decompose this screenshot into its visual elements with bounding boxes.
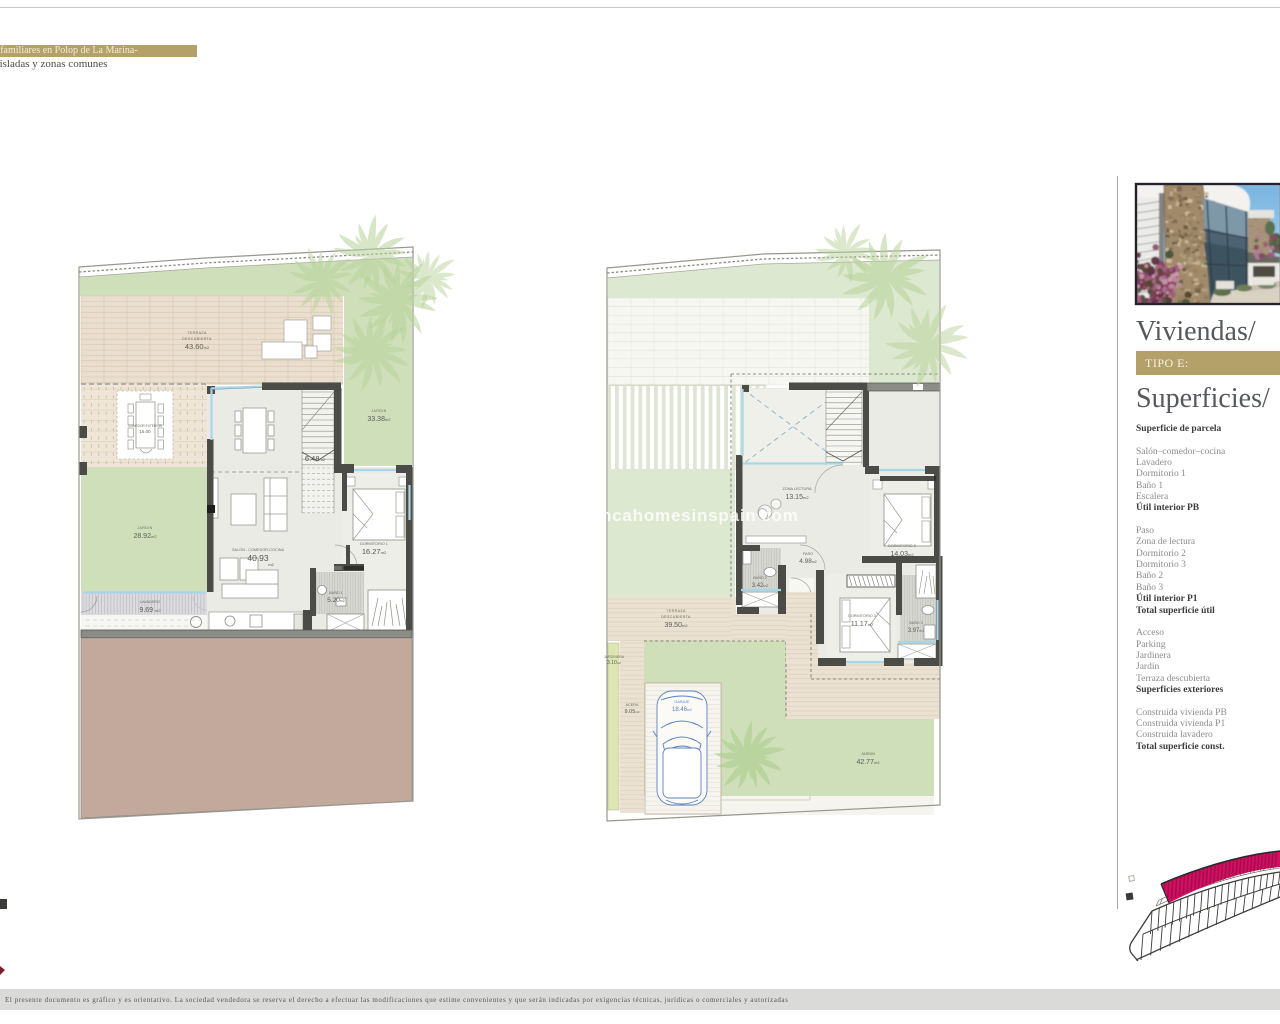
svg-text:GARAJE: GARAJE	[674, 700, 690, 704]
svg-text:TERRAZA: TERRAZA	[666, 609, 686, 613]
svg-text:40.93: 40.93	[247, 553, 269, 563]
svg-text:13.15m2: 13.15m2	[785, 494, 809, 501]
svg-text:DORMITORIO 3: DORMITORIO 3	[848, 614, 876, 618]
svg-text:4.98m2: 4.98m2	[799, 558, 817, 565]
svg-text:14.03m2: 14.03m2	[890, 551, 914, 558]
svg-text:39.50m2: 39.50m2	[664, 622, 688, 629]
svg-text:11.17m2: 11.17m2	[851, 621, 874, 628]
svg-text:DESCUBIERTA: DESCUBIERTA	[182, 337, 212, 341]
svg-text:DORMITORIO 2: DORMITORIO 2	[888, 544, 916, 548]
svg-text:DESCUBIERTA: DESCUBIERTA	[661, 615, 691, 619]
svg-text:BAÑO 3: BAÑO 3	[909, 620, 922, 625]
svg-text:BAÑO 1: BAÑO 1	[329, 590, 342, 595]
svg-text:JARDIN: JARDIN	[861, 752, 875, 756]
svg-text:BAÑO 2: BAÑO 2	[753, 575, 766, 580]
svg-text:COMEDOR EXTERIOR: COMEDOR EXTERIOR	[128, 424, 163, 428]
svg-text:9.69 m2: 9.69 m2	[139, 607, 161, 614]
svg-text:ZONA LECTURA: ZONA LECTURA	[782, 487, 812, 491]
svg-text:5.20m2: 5.20m2	[327, 597, 345, 604]
svg-text:JARDIN: JARDIN	[137, 526, 152, 530]
svg-text:TERRAZA: TERRAZA	[187, 331, 207, 335]
svg-text:JARDIN: JARDIN	[371, 409, 386, 413]
svg-text:33.38m2: 33.38m2	[367, 416, 391, 423]
svg-text:42.77m2: 42.77m2	[856, 759, 880, 766]
svg-text:m2: m2	[268, 562, 274, 567]
svg-text:DORMITORIO 1: DORMITORIO 1	[360, 542, 388, 546]
svg-text:SALON - COMEDOR-COCINA: SALON - COMEDOR-COCINA	[232, 548, 285, 552]
svg-text:28.92m2: 28.92m2	[133, 533, 157, 540]
svg-text:ACERA: ACERA	[625, 703, 639, 707]
svg-text:PASO: PASO	[803, 552, 813, 556]
svg-text:JARDINERA: JARDINERA	[604, 655, 625, 659]
svg-text:LAVADERO: LAVADERO	[140, 600, 160, 604]
svg-text:16.00: 16.00	[139, 429, 151, 434]
